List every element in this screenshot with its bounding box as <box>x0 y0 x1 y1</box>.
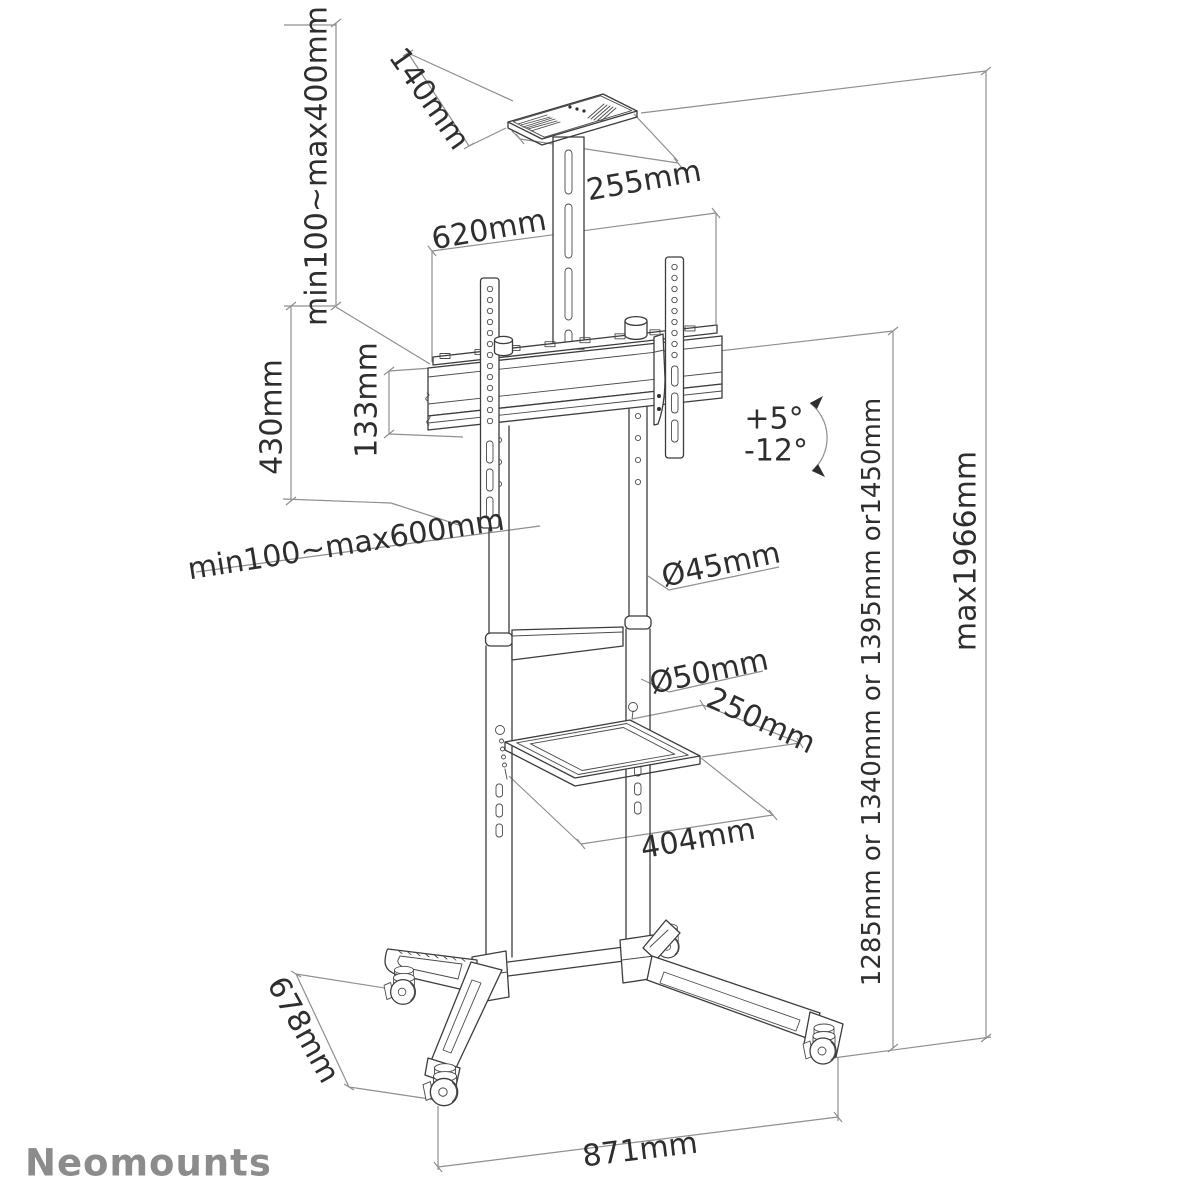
label-rail-spacing: 133mm <box>350 342 385 458</box>
dimension-labels: min100~max400mm 140mm 255mm 620mm 430mm … <box>185 6 983 1174</box>
column-cap-right <box>625 317 647 340</box>
caster-rear-left <box>384 966 415 1004</box>
label-max-height: max1966mm <box>949 451 984 651</box>
label-shelf-width: 404mm <box>638 812 758 867</box>
label-vesa-width-range: min100~max600mm <box>185 503 507 588</box>
vesa-rail-right <box>666 257 684 458</box>
middle-shelf <box>496 703 701 787</box>
tilt-latch <box>654 334 665 425</box>
label-lower-column-diameter: Ø50mm <box>647 642 772 701</box>
column-cap-left <box>495 336 513 355</box>
tv-floor-stand-technical-diagram: min100~max400mm 140mm 255mm 620mm 430mm … <box>0 0 1200 1200</box>
label-column-heights: 1285mm or 1340mm or 1395mm or1450mm <box>857 398 887 986</box>
label-upper-column-diameter: Ø45mm <box>659 535 784 594</box>
label-tray-depth: 140mm <box>381 42 476 157</box>
label-bracket-height: 430mm <box>255 359 290 475</box>
brand-logo: Neomounts <box>25 1142 272 1185</box>
shelf-support-beam <box>512 627 623 660</box>
label-shelf-depth: 250mm <box>701 681 821 762</box>
label-tilt-up: +5° <box>744 402 803 437</box>
label-base-width: 871mm <box>580 1126 699 1175</box>
label-tilt-down: -12° <box>744 434 808 469</box>
tray-strut <box>553 137 584 349</box>
label-crossbar-width: 620mm <box>429 203 549 258</box>
label-tray-width: 255mm <box>584 154 704 209</box>
vesa-rail-left <box>481 278 500 528</box>
label-tray-height-range: min100~max400mm <box>300 6 335 326</box>
shelf-safety-pin-icon <box>496 726 505 735</box>
shelf-hook-icon <box>629 703 638 712</box>
tilt-arc <box>810 403 827 471</box>
diagram-svg: min100~max400mm 140mm 255mm 620mm 430mm … <box>0 0 1200 1200</box>
base-beam <box>508 947 624 976</box>
